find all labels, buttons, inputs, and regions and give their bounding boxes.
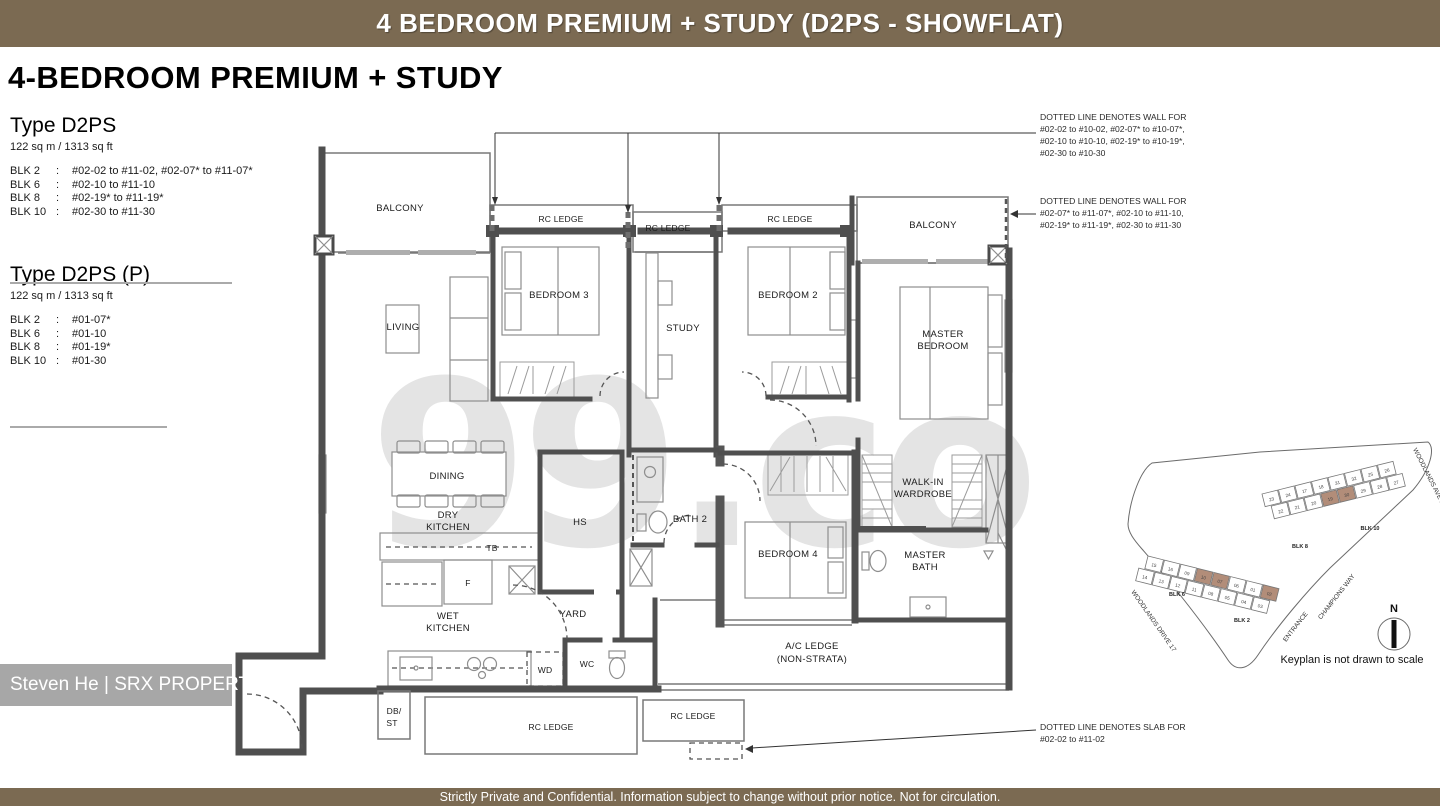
room-label: TB	[486, 543, 497, 553]
note-line: DOTTED LINE DENOTES SLAB FOR	[1040, 722, 1186, 732]
room-label: BALCONY	[376, 203, 424, 214]
room-label: DRY	[438, 510, 459, 521]
street-label: WOODLANDS AVE 1	[1411, 447, 1440, 506]
room-label: HS	[573, 517, 587, 528]
room-label: WALK-IN	[902, 477, 943, 488]
room-label: RC LEDGE	[538, 214, 583, 224]
keyplan-block-bottom: 15 16 09 10 07 06 01 02 14 13 12 11 08 0…	[1136, 555, 1279, 615]
keyplan-block-top: 23 24 17 18 31 32 25 26 22 21 20 19 30 2…	[1262, 460, 1405, 520]
street-label: WOODLANDS DRIVE 17	[1129, 589, 1177, 653]
room-label: YARD	[560, 609, 587, 620]
north-label: N	[1390, 603, 1398, 615]
room-label: WET	[437, 611, 459, 622]
room-label: BEDROOM 3	[529, 290, 589, 301]
room-label: MASTER	[922, 329, 963, 340]
room-label: BATH	[912, 562, 938, 573]
room-label: DINING	[429, 471, 464, 482]
north-compass-icon: N	[1378, 603, 1410, 650]
note-line: #02-19* to #11-19*, #02-30 to #11-30	[1040, 220, 1181, 230]
room-label: KITCHEN	[426, 522, 470, 533]
room-label: F	[465, 578, 470, 588]
note-line: #02-30 to #10-30	[1040, 148, 1106, 158]
room-label: MASTER	[904, 550, 945, 561]
room-label: (NON-STRATA)	[777, 654, 847, 665]
note-line: #02-10 to #10-10, #02-19* to #10-19*,	[1040, 136, 1185, 146]
room-label: RC LEDGE	[645, 223, 690, 233]
room-label: BEDROOM 2	[758, 290, 818, 301]
room-label: BATH 2	[673, 514, 707, 525]
room-label: WC	[580, 659, 595, 669]
keyplan-blk-label: BLK 6	[1169, 592, 1185, 598]
room-label: LIVING	[387, 322, 420, 333]
keyplan-blk-label: BLK 8	[1292, 544, 1308, 550]
keyplan-blk-label: BLK 2	[1234, 618, 1250, 624]
note-line: DOTTED LINE DENOTES WALL FOR	[1040, 196, 1186, 206]
room-label: BEDROOM 4	[758, 549, 818, 560]
footer-disclaimer: Strictly Private and Confidential. Infor…	[0, 788, 1440, 806]
room-label: STUDY	[666, 323, 700, 334]
room-label: BALCONY	[909, 220, 957, 231]
keyplan-caption: Keyplan is not drawn to scale	[1280, 654, 1423, 666]
street-label: CHAMPIONS WAY	[1317, 573, 1357, 621]
room-label: WD	[538, 665, 553, 675]
note-line: DOTTED LINE DENOTES WALL FOR	[1040, 112, 1186, 122]
room-label: WARDROBE	[894, 489, 952, 500]
note-line: #02-07* to #11-07*, #02-10 to #11-10,	[1040, 208, 1184, 218]
room-label: A/C LEDGE	[785, 641, 838, 652]
floorplan-sheet: 4 BEDROOM PREMIUM + STUDY (D2PS - SHOWFL…	[0, 0, 1440, 806]
room-label: RC LEDGE	[767, 214, 812, 224]
note-line: #02-02 to #10-02, #02-07* to #10-07*,	[1040, 124, 1185, 134]
room-label: DB/	[387, 706, 402, 716]
street-label: ENTRANCE	[1282, 610, 1310, 643]
room-label: RC LEDGE	[528, 722, 573, 732]
room-label: ST	[386, 718, 397, 728]
keyplan-blk-label: BLK 10	[1361, 526, 1380, 532]
note-line: #02-02 to #11-02	[1040, 734, 1105, 744]
keyplan: 23 24 17 18 31 32 25 26 22 21 20 19 30 2…	[1128, 442, 1440, 668]
room-label: KITCHEN	[426, 623, 470, 634]
agent-watermark: Steven He | SRX PROPERTY	[0, 664, 232, 706]
room-label: BEDROOM	[917, 341, 968, 352]
room-label: RC LEDGE	[670, 711, 715, 721]
